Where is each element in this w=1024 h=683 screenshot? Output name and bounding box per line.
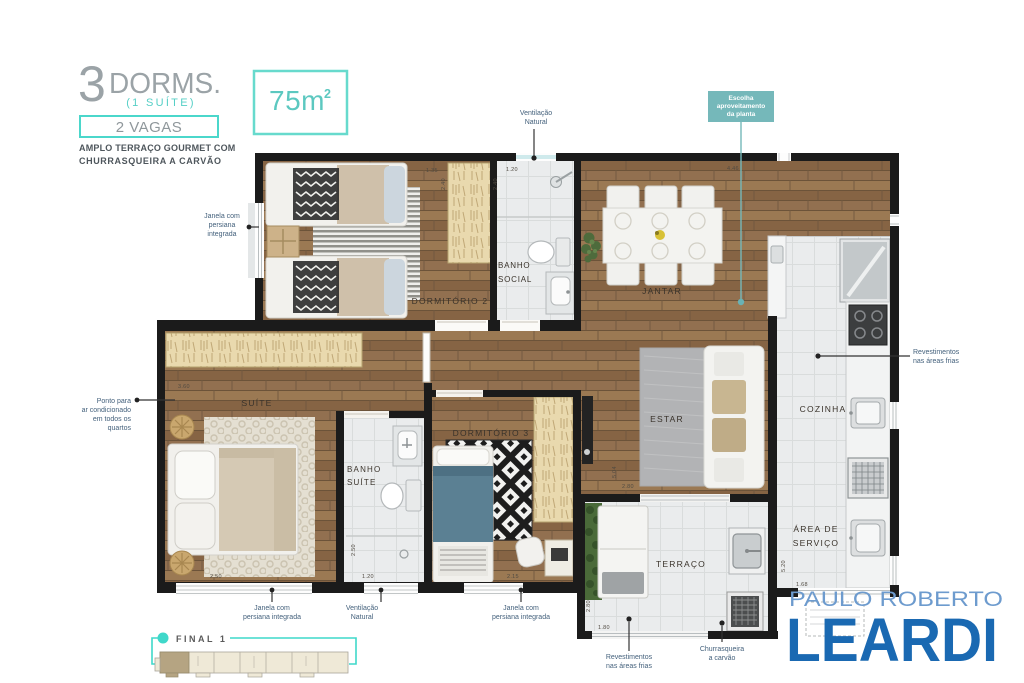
svg-text:2: 2 xyxy=(324,87,331,101)
svg-text:da planta: da planta xyxy=(727,111,756,118)
svg-text:2.15: 2.15 xyxy=(507,574,519,580)
svg-text:75m: 75m xyxy=(269,85,325,116)
svg-text:COZINHA: COZINHA xyxy=(800,404,847,414)
svg-text:SOCIAL: SOCIAL xyxy=(498,275,532,284)
svg-text:DORMITÓRIO 3: DORMITÓRIO 3 xyxy=(453,428,530,438)
svg-text:1.35: 1.35 xyxy=(426,168,438,174)
svg-text:Natural: Natural xyxy=(525,119,548,126)
svg-text:BANHO: BANHO xyxy=(347,465,381,474)
svg-text:2.40: 2.40 xyxy=(493,178,499,190)
svg-text:Ventilação: Ventilação xyxy=(520,110,552,117)
svg-text:2.40: 2.40 xyxy=(441,178,447,190)
svg-text:a carvão: a carvão xyxy=(709,655,736,662)
svg-text:Escolha: Escolha xyxy=(729,95,754,102)
svg-text:Churrasqueira: Churrasqueira xyxy=(700,646,744,653)
svg-text:AMPLO TERRAÇO GOURMET COM: AMPLO TERRAÇO GOURMET COM xyxy=(79,143,236,153)
svg-text:3.60: 3.60 xyxy=(178,384,190,390)
svg-text:3: 3 xyxy=(78,56,106,112)
svg-text:Ventilação: Ventilação xyxy=(346,605,378,612)
svg-text:em todos os: em todos os xyxy=(93,416,132,423)
svg-text:BANHO: BANHO xyxy=(498,261,530,270)
svg-text:nas áreas frias: nas áreas frias xyxy=(606,663,652,670)
svg-text:ar condicionado: ar condicionado xyxy=(82,407,132,414)
svg-text:4.46: 4.46 xyxy=(727,166,739,172)
svg-text:ESTAR: ESTAR xyxy=(650,414,684,424)
svg-text:Revestimentos: Revestimentos xyxy=(913,349,960,356)
svg-text:(1 SUÍTE): (1 SUÍTE) xyxy=(126,96,196,109)
svg-text:Janela com: Janela com xyxy=(254,605,290,612)
svg-text:SUÍTE: SUÍTE xyxy=(241,398,272,408)
svg-text:ÁREA DE: ÁREA DE xyxy=(793,524,838,534)
svg-text:DORMS.: DORMS. xyxy=(109,68,221,100)
svg-text:2.80: 2.80 xyxy=(586,600,592,612)
svg-text:1.20: 1.20 xyxy=(506,167,518,173)
svg-text:quartos: quartos xyxy=(108,425,132,432)
svg-text:SERVIÇO: SERVIÇO xyxy=(793,538,840,548)
svg-text:5.04: 5.04 xyxy=(612,466,618,478)
svg-text:persiana: persiana xyxy=(209,222,236,229)
svg-text:1.80: 1.80 xyxy=(598,625,610,631)
svg-text:2.50: 2.50 xyxy=(351,544,357,556)
svg-text:SUÍTE: SUÍTE xyxy=(347,478,377,487)
svg-text:Janela com: Janela com xyxy=(204,213,240,220)
svg-text:persiana integrada: persiana integrada xyxy=(243,614,301,621)
svg-text:DORMITÓRIO 2: DORMITÓRIO 2 xyxy=(412,296,489,306)
svg-text:2.50: 2.50 xyxy=(210,574,222,580)
svg-text:aproveitamento: aproveitamento xyxy=(717,103,765,110)
svg-text:Natural: Natural xyxy=(351,614,374,621)
svg-text:integrada: integrada xyxy=(207,231,236,238)
svg-text:persiana integrada: persiana integrada xyxy=(492,614,550,621)
svg-text:Ponto para: Ponto para xyxy=(97,398,131,405)
svg-text:2 VAGAS: 2 VAGAS xyxy=(116,119,183,136)
svg-text:FINAL 1: FINAL 1 xyxy=(176,634,227,644)
svg-text:Revestimentos: Revestimentos xyxy=(606,654,653,661)
svg-text:LEARDI: LEARDI xyxy=(786,606,998,674)
svg-text:CHURRASQUEIRA A CARVÃO: CHURRASQUEIRA A CARVÃO xyxy=(79,156,222,166)
svg-text:1.20: 1.20 xyxy=(362,574,374,580)
svg-text:JANTAR: JANTAR xyxy=(642,286,682,296)
svg-text:2.80: 2.80 xyxy=(622,484,634,490)
svg-text:TERRAÇO: TERRAÇO xyxy=(656,559,706,569)
svg-text:5.20: 5.20 xyxy=(781,560,787,572)
svg-text:Janela com: Janela com xyxy=(503,605,539,612)
svg-text:nas áreas frias: nas áreas frias xyxy=(913,358,959,365)
